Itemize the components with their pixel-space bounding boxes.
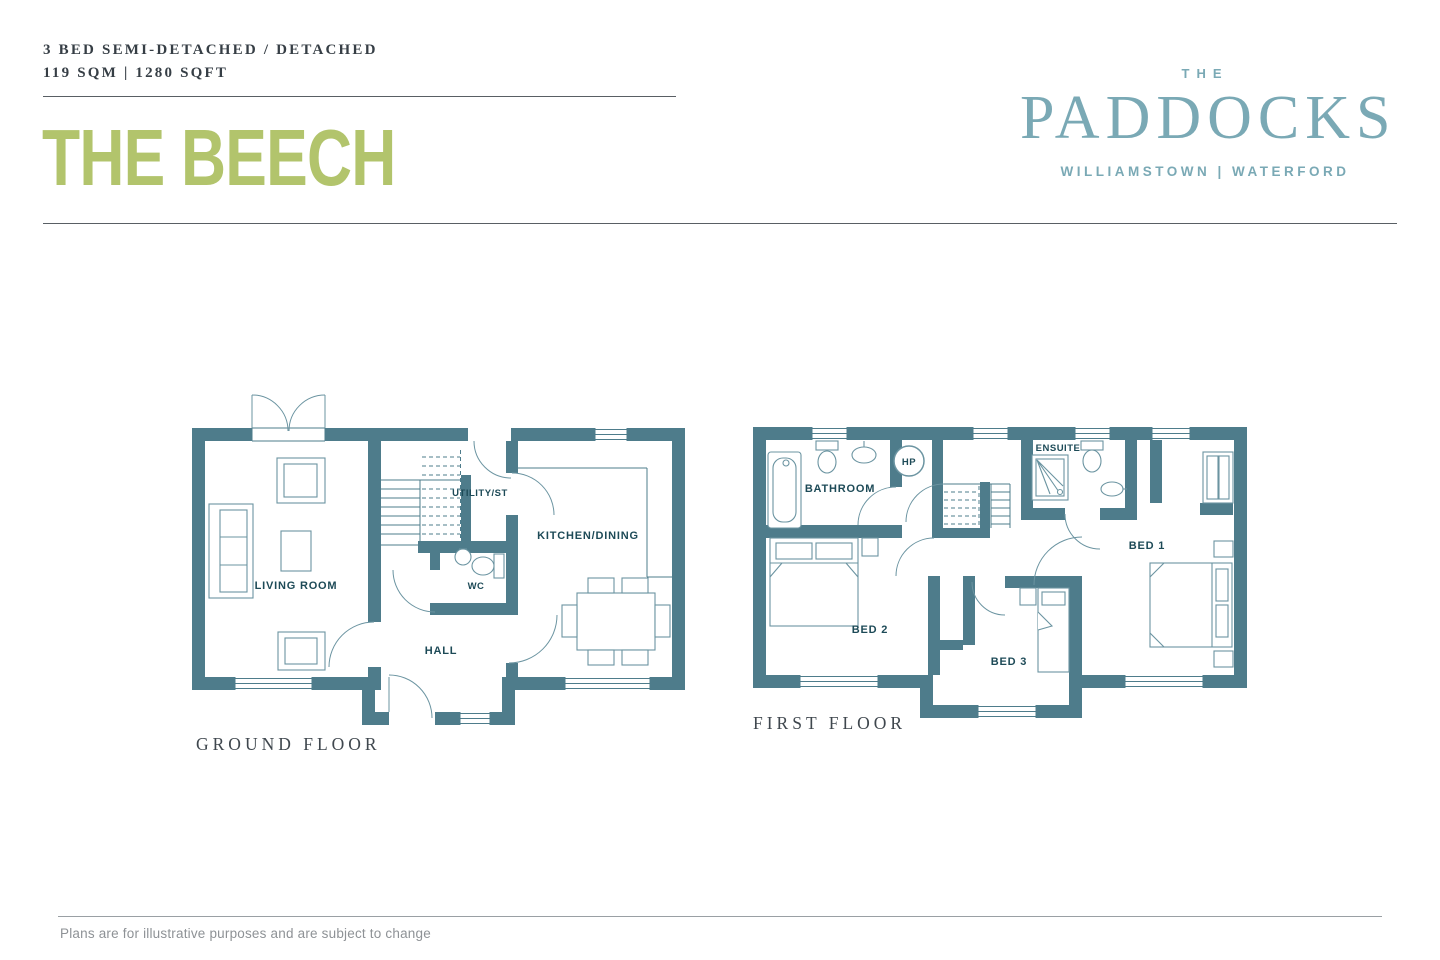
room-label-utility: UTILITY/ST [452, 488, 508, 499]
room-label-living: LIVING ROOM [255, 580, 338, 592]
window [235, 677, 312, 690]
wall [753, 427, 812, 440]
wall [506, 515, 518, 615]
wall [490, 712, 515, 725]
footer-rule [58, 916, 1382, 917]
wall [435, 712, 460, 725]
door-arc [329, 622, 374, 667]
chair [588, 650, 614, 665]
window [1152, 427, 1190, 440]
window-lines [1152, 427, 1190, 440]
pillow [1042, 592, 1065, 605]
window [595, 428, 627, 441]
door-arc [1065, 514, 1100, 549]
ground-floor-caption: GROUND FLOOR [196, 734, 381, 754]
chair [562, 605, 577, 637]
chair [588, 578, 614, 593]
window [1125, 675, 1203, 688]
chair [622, 578, 648, 593]
single-bed [1020, 588, 1069, 672]
wall [430, 603, 506, 615]
wall [1005, 576, 1069, 588]
wall [932, 440, 943, 538]
wall [1234, 427, 1247, 688]
wall [847, 427, 973, 440]
window-lines [460, 712, 490, 725]
door-arc [252, 395, 288, 431]
wardrobe-door [1207, 456, 1218, 499]
staircase [381, 450, 461, 545]
stair-outline [944, 484, 1010, 528]
wall [312, 677, 368, 690]
armchair [278, 632, 325, 670]
wall [928, 640, 963, 650]
dining-table [562, 578, 670, 665]
wall [325, 428, 468, 441]
door-arc [289, 395, 325, 431]
toilet-cistern [494, 554, 504, 578]
door-threshold [252, 428, 325, 441]
stair-treads [381, 489, 420, 534]
armchair-seat [284, 464, 317, 497]
door-arc [474, 441, 511, 478]
nightstand [1214, 541, 1233, 557]
bath-inner [773, 458, 796, 522]
chair [622, 650, 648, 665]
stair-treads [991, 492, 1010, 524]
toilet-bowl [1083, 450, 1101, 472]
door-arc [509, 615, 557, 663]
wall [368, 441, 381, 622]
wall [878, 675, 920, 688]
wall [362, 712, 389, 725]
floor-plans: LIVING ROOM UTILITY/ST KITCHEN/DINING WC… [0, 0, 1440, 960]
shower [1032, 455, 1068, 500]
wall [672, 428, 685, 690]
wardrobe [1203, 452, 1233, 503]
wall [506, 663, 518, 690]
double-bed [770, 538, 878, 626]
basin-bowl [1101, 482, 1123, 496]
door-arc [896, 538, 934, 576]
room-label-ensuite: ENSUITE [1036, 443, 1081, 454]
wall [920, 705, 978, 718]
door-arc [393, 570, 435, 612]
basin [1101, 482, 1127, 496]
door-arc [389, 675, 432, 718]
wall [1069, 576, 1082, 675]
window [1075, 427, 1110, 440]
armchair-seat [285, 638, 317, 664]
window-lines [235, 677, 312, 690]
pillow [1216, 569, 1228, 601]
door-arc [512, 473, 554, 515]
window-lines [595, 428, 627, 441]
wall [368, 667, 381, 690]
basin-bowl [852, 447, 876, 463]
front-door [389, 675, 432, 718]
heat-pump: HP [894, 446, 924, 476]
wall [192, 428, 205, 690]
window [812, 427, 847, 440]
disclaimer-text: Plans are for illustrative purposes and … [60, 926, 431, 941]
window-lines [800, 675, 878, 688]
bath-tap [783, 460, 789, 466]
window [565, 677, 650, 690]
toilet-bowl [472, 557, 494, 575]
toilet [1081, 441, 1103, 472]
wall [928, 576, 940, 675]
basin [852, 441, 876, 463]
ground-floor-plan: LIVING ROOM UTILITY/ST KITCHEN/DINING WC… [192, 395, 685, 754]
wall [1125, 440, 1137, 520]
stair-treads-hidden [944, 486, 979, 528]
coffee-table [281, 531, 311, 571]
brochure-page: 3 BED SEMI-DETACHED / DETACHED 119 SQM |… [0, 0, 1440, 960]
wardrobe-door [1219, 456, 1229, 499]
basin-bowl [455, 549, 471, 565]
first-floor-caption: FIRST FLOOR [753, 713, 906, 733]
wall [1036, 705, 1082, 718]
room-label-bathroom: BATHROOM [805, 483, 875, 495]
wall [1203, 675, 1247, 688]
first-floor-plan: HP [753, 427, 1247, 733]
wall [506, 441, 518, 473]
room-label-hall: HALL [425, 645, 458, 657]
double-bed [1150, 541, 1233, 667]
window [460, 712, 490, 725]
wall [963, 576, 975, 645]
room-label-bed1: BED 1 [1129, 540, 1165, 552]
window-lines [1075, 427, 1110, 440]
pillow [776, 543, 812, 559]
toilet-cistern [1081, 441, 1103, 450]
basin [455, 549, 471, 565]
wall [753, 675, 800, 688]
wall [461, 475, 471, 548]
toilet-cistern [816, 441, 838, 450]
window [800, 675, 878, 688]
wall [753, 427, 766, 688]
wall [1150, 440, 1162, 503]
pillow [1216, 605, 1228, 637]
room-label-kitchen: KITCHEN/DINING [537, 530, 639, 542]
chair [655, 605, 670, 637]
window-lines [973, 427, 1008, 440]
window [978, 705, 1036, 718]
window-lines [978, 705, 1036, 718]
bathtub [768, 452, 801, 528]
door-leaf [252, 395, 325, 428]
sofa-seat [220, 510, 247, 592]
stair-outline [381, 480, 461, 545]
door-arc [972, 582, 1005, 615]
toilet [472, 554, 504, 578]
pillow [816, 543, 852, 559]
room-label-bed2: BED 2 [852, 624, 888, 636]
sofa [209, 504, 253, 598]
room-label-bed3: BED 3 [991, 656, 1027, 668]
window-lines [812, 427, 847, 440]
staircase [944, 484, 1010, 528]
toilet-bowl [818, 451, 836, 473]
wall [1008, 427, 1075, 440]
nightstand [1020, 588, 1036, 605]
wall [1021, 440, 1033, 508]
window [973, 427, 1008, 440]
armchair [277, 458, 325, 503]
wall [511, 428, 595, 441]
shower-drain [1058, 490, 1063, 495]
hp-label: HP [902, 457, 916, 468]
window-lines [565, 677, 650, 690]
wall [192, 428, 252, 441]
nightstand [862, 538, 878, 556]
table [577, 593, 655, 650]
wall [980, 482, 990, 538]
wall [1082, 675, 1125, 688]
wall [1200, 503, 1233, 515]
toilet [816, 441, 838, 473]
wall [1110, 427, 1152, 440]
room-label-wc: WC [468, 581, 485, 592]
wall [1021, 508, 1065, 520]
wall [192, 677, 235, 690]
wall [430, 553, 440, 570]
window-lines [1125, 675, 1203, 688]
wall [650, 677, 685, 690]
nightstand [1214, 651, 1233, 667]
french-door [252, 395, 325, 441]
